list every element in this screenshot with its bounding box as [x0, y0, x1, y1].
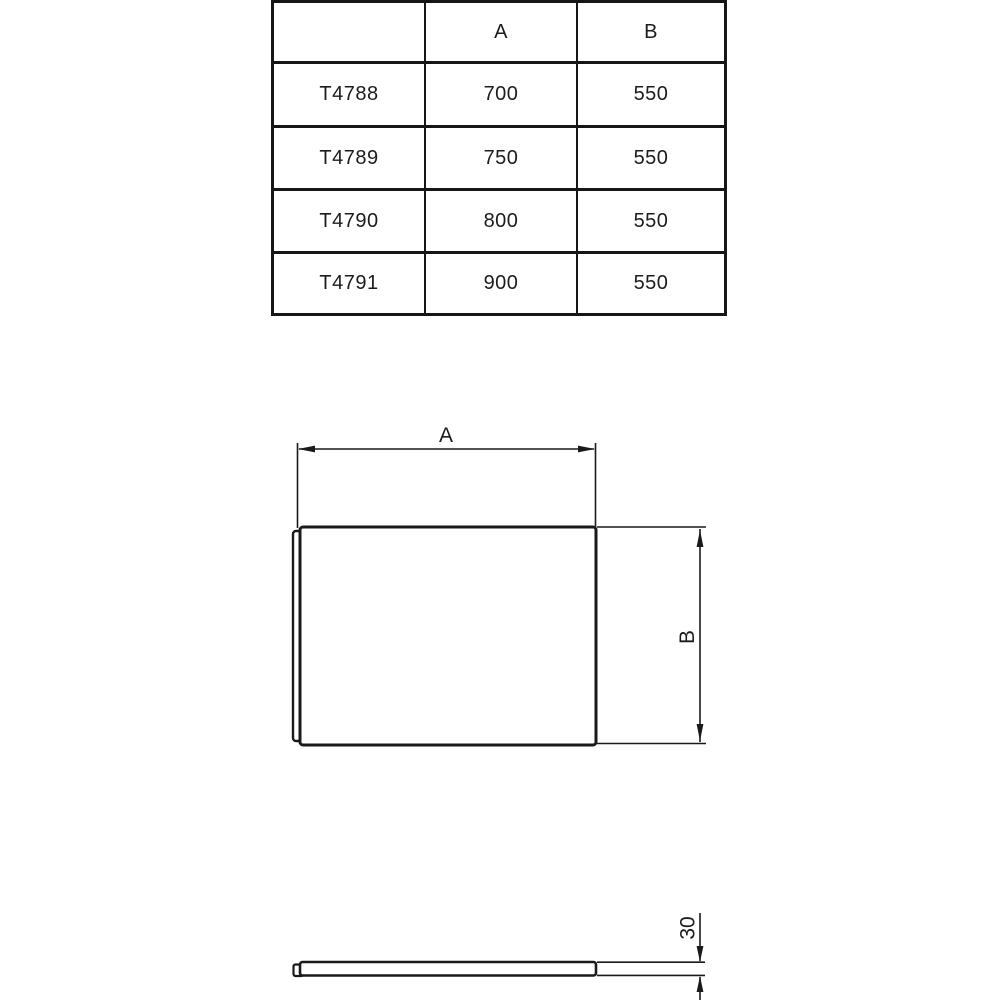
dim-a-arrow-right-icon: [578, 446, 595, 453]
dim-30-arrow-down-icon: [697, 946, 704, 962]
front-view: A B: [293, 424, 706, 745]
dim-b-arrow-top-icon: [697, 530, 704, 547]
dim-a-label: A: [439, 424, 453, 447]
side-view: 30: [294, 913, 706, 1000]
panel-side-profile: [300, 962, 596, 976]
dim-a-arrow-left-icon: [298, 446, 315, 453]
dim-b-label: B: [676, 630, 699, 644]
panel-front-face: [300, 527, 596, 745]
dim-30-label: 30: [677, 916, 700, 939]
dim-30-arrow-up-icon: [697, 976, 704, 992]
technical-drawing-page: A B T4788 700 550 T4789 750 550 T4790 80…: [0, 0, 1000, 1000]
panel-drawings: A B 30: [0, 0, 1000, 1000]
dim-b-arrow-bottom-icon: [697, 724, 704, 741]
